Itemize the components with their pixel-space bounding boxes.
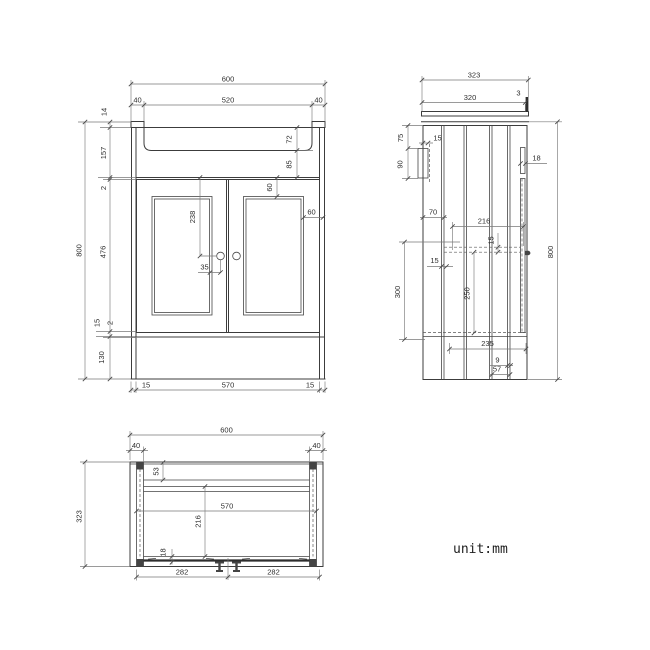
dim-front-side-panel-left: 15	[142, 381, 150, 390]
drawer-front-side	[521, 148, 526, 174]
dim-front-basin-offset-right: 40	[314, 96, 322, 105]
dim-side-back-overhang: 3	[516, 89, 520, 98]
dim-front-handle-offset: 35	[200, 263, 208, 272]
countertop-side	[422, 112, 529, 117]
dim-side-total-height: 800	[546, 246, 555, 259]
dim-side-counter-depth: 320	[464, 93, 477, 102]
leg-front-right	[310, 559, 317, 567]
dim-side-shelf-depth: 216	[478, 217, 491, 226]
dim-plan-back-rail-depth: 53	[152, 467, 161, 475]
front-dim-lines	[78, 80, 325, 393]
dim-side-bracket-height: 90	[396, 160, 405, 168]
dim-front-apron-height: 157	[99, 147, 108, 160]
unit-label: unit:mm	[453, 542, 508, 557]
dim-side-base-depth: 235	[481, 339, 494, 348]
left-door-knob	[217, 252, 225, 260]
dim-side-rail-width: 15	[430, 256, 438, 265]
leg-back-left	[137, 462, 144, 470]
dim-front-door-height: 476	[99, 246, 108, 259]
dim-side-shelf-thickness: 15	[487, 236, 496, 244]
door-side	[521, 179, 526, 333]
dim-plan-total-depth: 323	[75, 510, 84, 523]
dim-plan-hinge-span-right: 282	[267, 568, 280, 577]
dim-side-groove-width: 9	[495, 356, 499, 365]
plan-dimensions: 600 40 40 53 570 216 18 282 282 323	[75, 426, 328, 581]
dim-side-shelf-to-base: 250	[463, 287, 472, 300]
dim-front-bottom-gap: 15	[93, 319, 102, 327]
dim-plan-door-thickness: 18	[159, 548, 168, 556]
technical-drawing-vanity-unit: 600 40 520 40 14 157 2 476 15 2 130 800 …	[0, 0, 650, 650]
dim-front-top-gap: 2	[99, 186, 108, 190]
dim-front-panel-top-inset: 60	[265, 183, 274, 191]
side-dimensions: 323 320 3 75 90 15 70 216 15 15 300 250 …	[393, 71, 562, 382]
dim-plan-hinge-span-left: 282	[176, 568, 189, 577]
dim-front-bottom-gap2: 2	[106, 321, 115, 325]
right-door-panel	[244, 197, 304, 316]
front-outline	[131, 122, 325, 380]
right-door-knob	[233, 252, 241, 260]
dim-front-basin-offset-left: 40	[133, 96, 141, 105]
counter-tab-left	[131, 122, 144, 128]
dim-side-bracket-top-offset: 75	[396, 134, 405, 142]
dim-plan-leg-left: 40	[132, 441, 140, 450]
dim-plan-total-width: 600	[220, 426, 233, 435]
front-dim-ticks	[83, 82, 327, 392]
dim-front-basin-width: 520	[222, 96, 235, 105]
dim-front-total-width: 600	[222, 75, 235, 84]
dim-side-door-thickness: 18	[532, 154, 540, 163]
dim-side-shelf-span: 300	[393, 286, 402, 299]
leg-front-left	[137, 559, 144, 567]
dim-front-side-panel-right: 15	[306, 381, 314, 390]
dim-front-panel-side-inset: 60	[307, 208, 315, 217]
leg-back-right	[310, 462, 317, 470]
dim-front-plinth-height: 130	[97, 351, 106, 364]
dim-plan-leg-right: 40	[312, 441, 320, 450]
knob-side	[526, 251, 530, 255]
dim-side-back-inset: 57	[493, 365, 501, 374]
side-view: 323 320 3 75 90 15 70 216 15 15 300 250 …	[393, 71, 562, 382]
right-door-panel-inner	[246, 199, 301, 313]
dim-plan-inner-width: 570	[221, 502, 234, 511]
side-outline	[418, 112, 530, 380]
dim-front-handle-drop: 238	[188, 211, 197, 224]
front-dimensions: 600 40 520 40 14 157 2 476 15 2 130 800 …	[75, 75, 328, 394]
door-frame	[136, 178, 320, 333]
dim-plan-inner-depth: 216	[194, 515, 203, 528]
dim-side-total-depth: 323	[468, 71, 481, 80]
dim-front-basin-depth: 72	[285, 135, 294, 143]
dim-side-front-offset: 70	[429, 208, 437, 217]
dim-front-basin-to-doors: 85	[285, 160, 294, 168]
counter-tab-right	[312, 122, 325, 128]
front-view: 600 40 520 40 14 157 2 476 15 2 130 800 …	[75, 75, 328, 394]
plan-dim-ticks	[83, 433, 325, 579]
dim-side-bracket-width: 15	[433, 134, 441, 143]
dim-front-inner-width: 570	[222, 381, 235, 390]
dim-front-total-height: 800	[75, 244, 84, 257]
drawing-svg: 600 40 520 40 14 157 2 476 15 2 130 800 …	[0, 0, 650, 650]
plan-view: 600 40 40 53 570 216 18 282 282 323	[75, 426, 328, 581]
dim-front-counter-thickness: 14	[100, 108, 109, 116]
